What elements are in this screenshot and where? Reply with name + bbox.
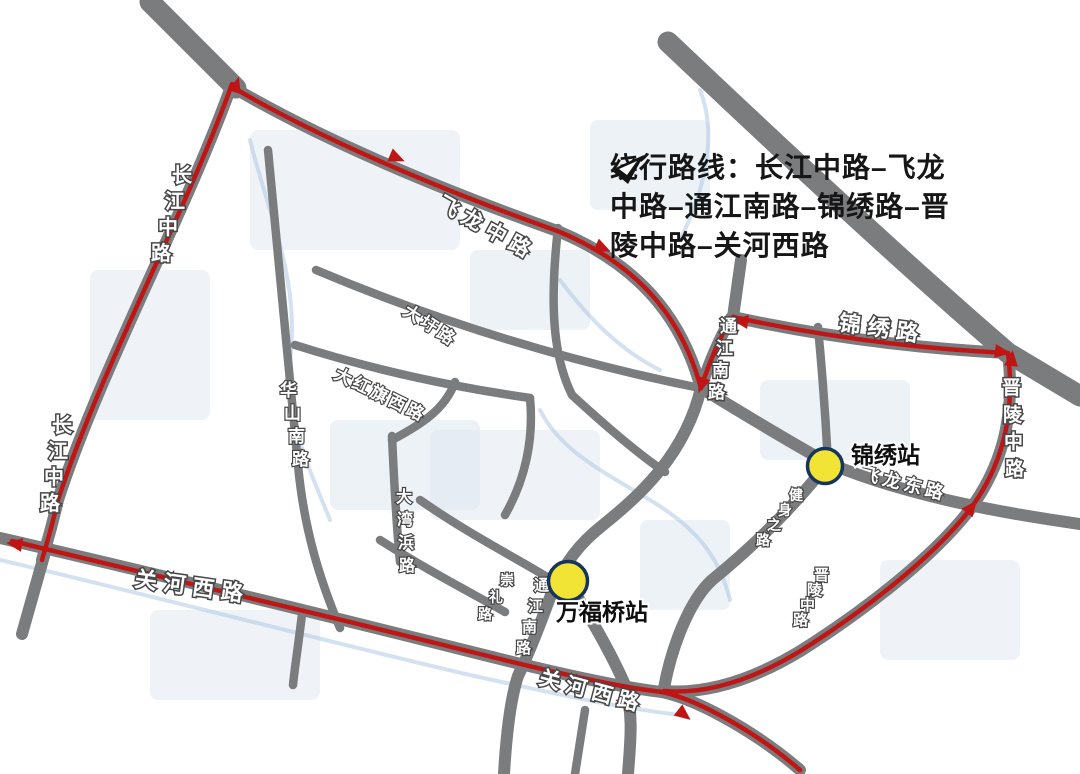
road-dahongqi-xilu (295, 345, 530, 398)
road-label: 关河西路 (537, 666, 648, 717)
station-label: 万福桥站 (556, 599, 648, 625)
legend-line-2: 中路–通江南路–锦绣路–晋 (610, 187, 950, 226)
road-label: 晋陵中路 (793, 567, 829, 629)
station-marker (549, 562, 588, 601)
map-canvas: 长江中路长江中路飞龙中路大圩路大红旗西路华山南路大湾浜路通江南路锦绣路晋陵中路飞… (0, 0, 1080, 774)
legend-line-1: 绕行路线：长江中路–飞龙 (610, 148, 950, 187)
legend-text: 绕行路线：长江中路–飞龙 中路–通江南路–锦绣路–晋 陵中路–关河西路 (610, 148, 950, 265)
detour-arrow-icon (610, 154, 646, 186)
station-marker (808, 449, 843, 484)
detour-map: 长江中路长江中路飞龙中路大圩路大红旗西路华山南路大湾浜路通江南路锦绣路晋陵中路飞… (0, 0, 1080, 774)
road-label: 飞龙东路 (859, 463, 949, 505)
road-top-left-feeder (150, 2, 236, 88)
legend: 绕行路线：长江中路–飞龙 中路–通江南路–锦绣路–晋 陵中路–关河西路 (610, 148, 1050, 265)
road-south-stub-2 (575, 710, 585, 774)
road-tongjiang-nanlu-north-stub (733, 260, 741, 317)
station-label: 锦绣站 (851, 442, 920, 468)
legend-line-3: 陵中路–关河西路 (610, 226, 950, 265)
road-label: 健身之路 (756, 487, 803, 548)
road-label: 关河西路 (133, 566, 251, 607)
